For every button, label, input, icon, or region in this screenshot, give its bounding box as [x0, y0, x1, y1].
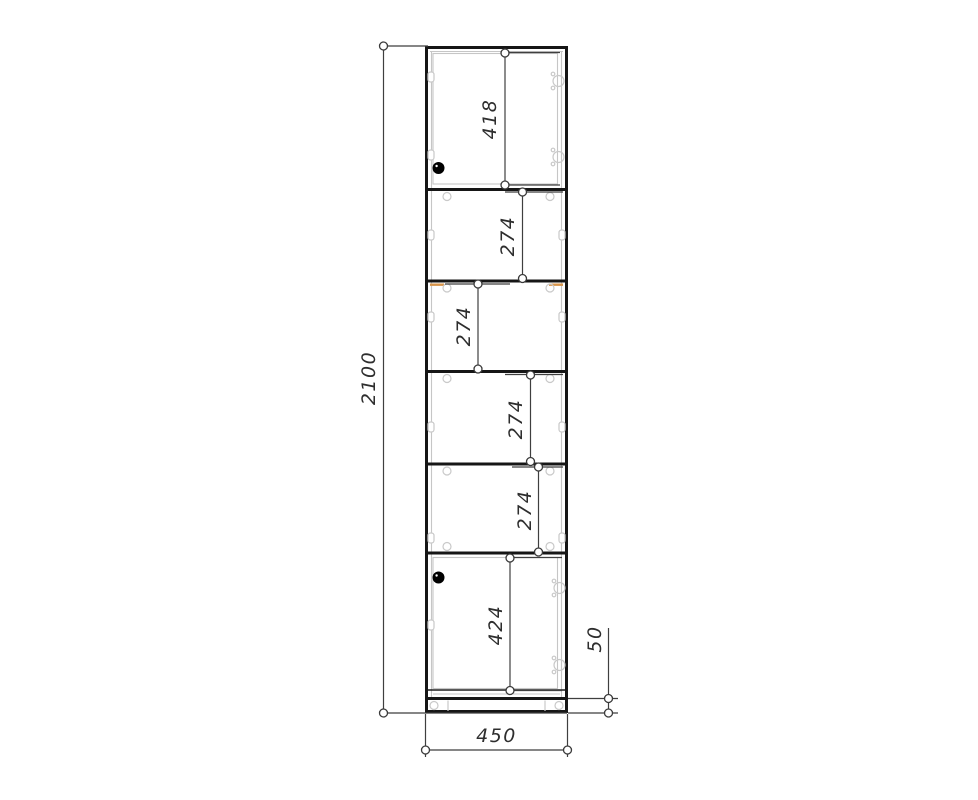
dimension-endpoint: [422, 746, 430, 754]
dimension-endpoint: [474, 280, 482, 288]
hinge-icon: [553, 76, 564, 87]
dimension-endpoint: [501, 181, 509, 189]
cam-fitting-icon: [428, 312, 434, 322]
dimension-endpoint: [380, 42, 388, 50]
shelf-pin-icon: [546, 193, 554, 201]
hinge-screw-icon: [552, 593, 556, 597]
cam-fitting-icon: [559, 533, 565, 543]
dimension-endpoint: [605, 695, 613, 703]
wall-fittings: [428, 72, 565, 630]
bottom-panel: [428, 690, 565, 699]
dimension-endpoint: [506, 554, 514, 562]
door-knob: [433, 162, 445, 174]
hinge-icon: [554, 660, 565, 671]
shelf-pin-icon: [546, 375, 554, 383]
dimension-endpoint: [605, 709, 613, 717]
dimension-endpoint: [506, 687, 514, 695]
knob-highlight: [435, 574, 437, 576]
cam-fitting-icon: [428, 150, 434, 160]
dimension-label-section-4: 274: [505, 399, 527, 440]
dimension-overall-width: 450: [422, 714, 572, 757]
dimension-label-plinth: 50: [584, 625, 606, 652]
cam-fitting-icon: [428, 533, 434, 543]
dimension-endpoint: [519, 188, 527, 196]
orange-edge-mark: [430, 284, 444, 286]
dimension-top-door: 418: [479, 49, 560, 189]
dimension-bottom-door: 424: [485, 554, 562, 695]
hinge-icon: [553, 152, 564, 163]
dimension-section-2: 274: [497, 188, 563, 283]
dimension-endpoint: [380, 709, 388, 717]
knob-highlight: [435, 165, 437, 167]
hinge-screw-icon: [552, 656, 556, 660]
hinge-icon: [554, 583, 565, 594]
hinge-screw-icon: [551, 72, 555, 76]
plinth-fitting-icon: [430, 702, 438, 710]
shelf-pin-icon: [443, 543, 451, 551]
dimension-endpoint: [501, 49, 509, 57]
hinge-screw-icon: [551, 148, 555, 152]
dimension-section-4: 274: [505, 371, 563, 466]
dimension-endpoint: [519, 275, 527, 283]
hinge-screw-icon: [551, 162, 555, 166]
dimension-endpoint: [564, 746, 572, 754]
dimension-endpoint: [535, 548, 543, 556]
shelf-pin-icon: [546, 543, 554, 551]
dimension-plinth: 50: [568, 625, 618, 717]
dimension-label-section-5: 274: [514, 490, 536, 531]
drawing-canvas: 2100 418 274 274 274 274: [0, 0, 978, 800]
dimension-label-top-door: 418: [479, 99, 501, 140]
dimension-label-overall-height: 2100: [358, 351, 380, 405]
dimension-label-section-2: 274: [497, 216, 519, 257]
shelf-pin-icon: [443, 467, 451, 475]
bottom-door-hinges: [552, 579, 565, 674]
hinge-screw-icon: [552, 579, 556, 583]
cabinet-drawing: 2100 418 274 274 274 274: [0, 0, 978, 800]
dimension-label-section-3: 274: [453, 306, 475, 347]
plinth: [430, 701, 563, 712]
cam-fitting-icon: [428, 620, 434, 630]
cam-fitting-icon: [428, 72, 434, 82]
door-knob: [433, 572, 445, 584]
shelf-pin-icon: [443, 284, 451, 292]
dimension-endpoint: [474, 365, 482, 373]
hinge-screw-icon: [552, 670, 556, 674]
cam-fitting-icon: [559, 422, 565, 432]
cam-fitting-icon: [559, 312, 565, 322]
shelf-pin-icon: [443, 193, 451, 201]
dimension-section-5: 274: [512, 463, 563, 556]
dimension-label-bottom-door: 424: [485, 605, 507, 646]
dimension-endpoint: [527, 371, 535, 379]
plinth-fitting-icon: [555, 702, 563, 710]
dimension-endpoint: [535, 463, 543, 471]
dimension-overall-height: 2100: [358, 42, 567, 717]
dimension-endpoint: [527, 458, 535, 466]
dimension-label-overall-width: 450: [476, 725, 517, 747]
cam-fitting-icon: [428, 422, 434, 432]
shelf-pin-icon: [443, 375, 451, 383]
cam-fitting-icon: [559, 230, 565, 240]
shelf-pin-icon: [546, 467, 554, 475]
cam-fitting-icon: [428, 230, 434, 240]
hinge-screw-icon: [551, 86, 555, 90]
dimension-section-3: 274: [445, 280, 510, 373]
